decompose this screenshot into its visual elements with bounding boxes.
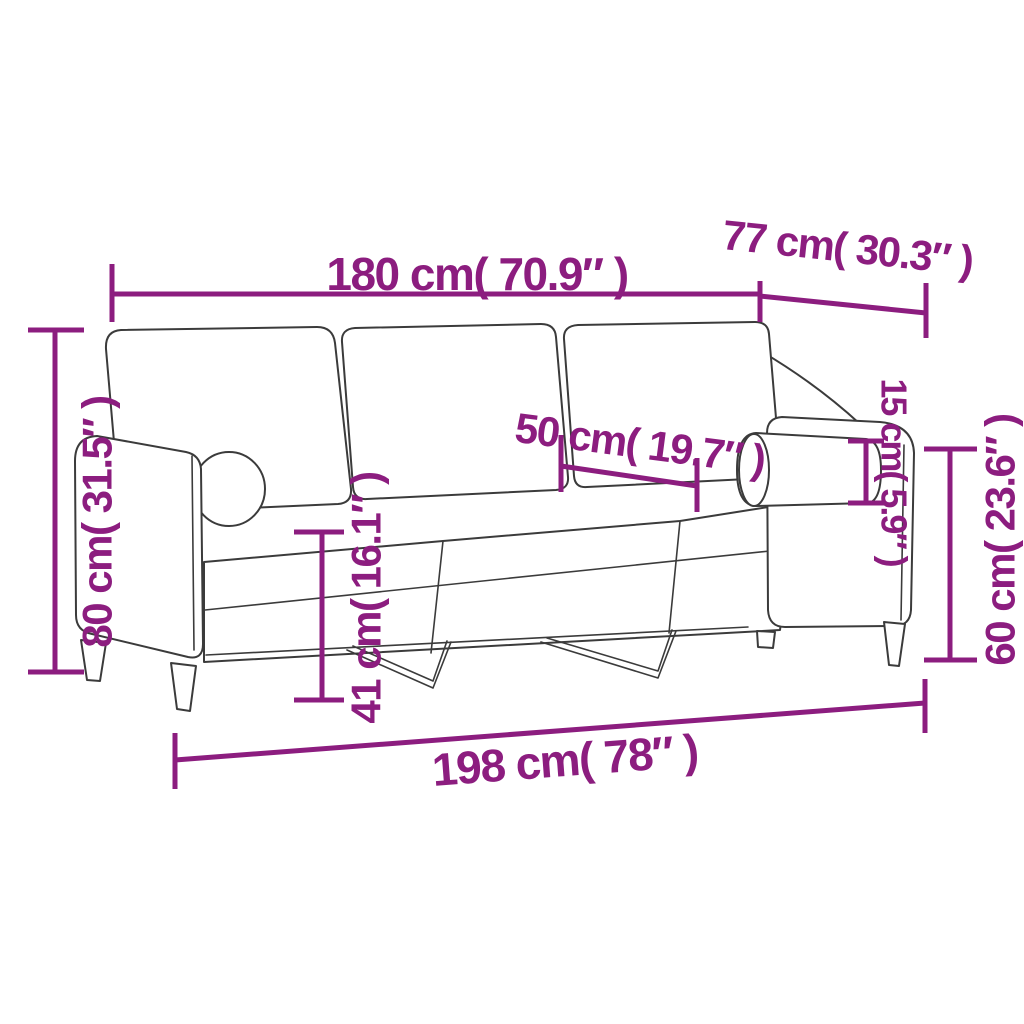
diagram-canvas: 180 cm( 70.9″ ) 77 cm( 30.3″ ) 80 cm( 31… xyxy=(0,0,1024,1024)
bolster-pillow-left xyxy=(193,452,265,526)
dimension-label-back-height: 80 cm( 31.5″ ) xyxy=(74,396,121,647)
dimension-overall-width-bottom: 198 cm( 78″ ) xyxy=(175,679,925,796)
sofa-dimension-diagram: 180 cm( 70.9″ ) 77 cm( 30.3″ ) 80 cm( 31… xyxy=(0,0,1024,1024)
dimension-label-overall-width-top: 180 cm( 70.9″ ) xyxy=(326,248,627,300)
front-leg-right-stub xyxy=(757,631,775,648)
dimension-back-height: 80 cm( 31.5″ ) xyxy=(28,330,121,672)
dimension-armrest-height: 60 cm( 23.6″ ) xyxy=(924,414,1024,665)
dimension-label-seat-height: 41 cm( 16.1″ ) xyxy=(343,472,390,723)
dimension-label-bolster-diameter: 15 cm( 5.9″ ) xyxy=(874,378,915,566)
sofa-drawing xyxy=(75,322,914,711)
dimension-label-armrest-height: 60 cm( 23.6″ ) xyxy=(977,414,1024,665)
dimension-label-depth: 77 cm( 30.3″ ) xyxy=(720,211,975,284)
dimension-line xyxy=(760,296,926,313)
seat-base xyxy=(204,505,790,662)
dimension-label-overall-width-bottom: 198 cm( 78″ ) xyxy=(430,724,699,796)
front-leg-left-inner xyxy=(171,663,196,711)
dimension-overall-width-top: 180 cm( 70.9″ ) xyxy=(112,248,760,322)
front-leg-right-outer xyxy=(884,622,905,666)
